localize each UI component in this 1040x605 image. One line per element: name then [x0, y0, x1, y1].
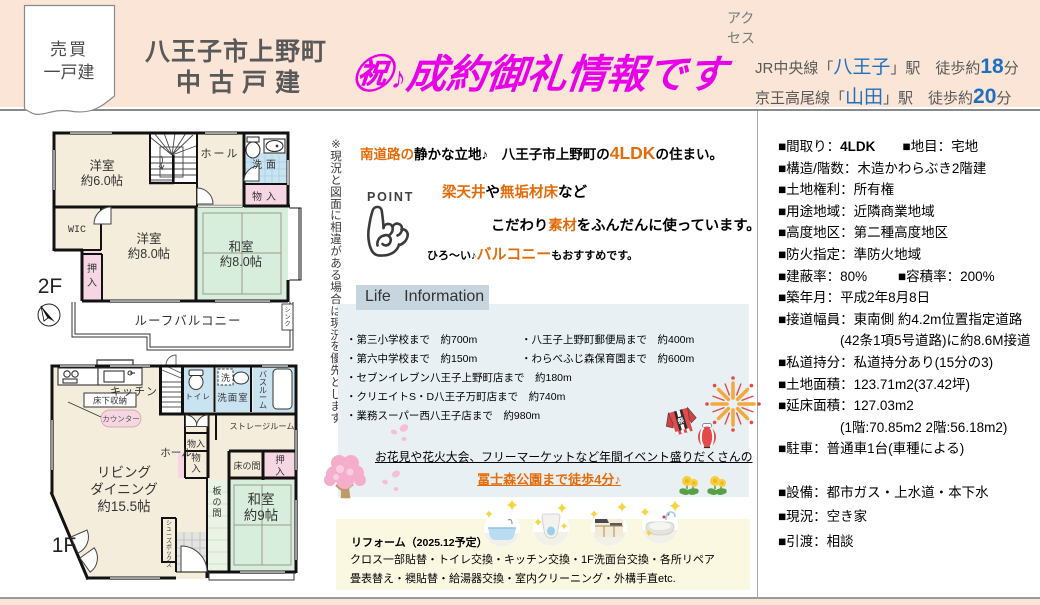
svg-text:ストレージルーム: ストレージルーム [229, 422, 294, 431]
svg-text:入: 入 [191, 464, 201, 475]
svg-text:ホール: ホール [201, 147, 240, 160]
svg-text:洋室: 洋室 [89, 158, 114, 173]
svg-text:シ: シ [284, 308, 290, 314]
svg-text:約9帖: 約9帖 [244, 508, 279, 523]
svg-text:入: 入 [87, 278, 97, 289]
svg-text:カウンター: カウンター [102, 415, 140, 424]
svg-text:和室: 和室 [228, 239, 253, 254]
svg-text:ン: ン [284, 315, 290, 321]
svg-text:床の間: 床の間 [233, 460, 260, 471]
svg-text:リビング: リビング [97, 465, 151, 480]
svg-text:洋室: 洋室 [136, 231, 161, 246]
svg-text:一戸建: 一戸建 [44, 63, 95, 82]
svg-text:トイレ: トイレ [185, 392, 211, 401]
svg-text:ボ: ボ [166, 543, 172, 551]
svg-text:ク: ク [284, 321, 290, 328]
svg-text:和室: 和室 [248, 491, 275, 507]
svg-text:物: 物 [191, 452, 201, 464]
svg-text:ダイニング: ダイニング [90, 482, 158, 497]
svg-text:1F: 1F [52, 534, 77, 557]
svg-text:2F: 2F [38, 275, 63, 298]
svg-text:ズ: ズ [166, 537, 172, 545]
svg-text:物入: 物入 [252, 190, 280, 203]
svg-text:板: 板 [212, 485, 221, 496]
svg-text:押: 押 [275, 454, 285, 466]
svg-text:売買: 売買 [50, 40, 88, 59]
svg-text:ム: ム [259, 401, 267, 410]
svg-text:約6.0帖: 約6.0帖 [81, 173, 123, 188]
svg-text:ホール: ホール [160, 447, 192, 459]
svg-text:ルーフバルコニー: ルーフバルコニー [134, 314, 241, 328]
svg-text:洗: 洗 [221, 372, 230, 383]
svg-text:床下収納: 床下収納 [93, 396, 127, 406]
svg-text:間: 間 [212, 508, 221, 518]
svg-text:約8.0帖: 約8.0帖 [128, 246, 170, 261]
svg-text:WIC: WIC [68, 225, 86, 236]
svg-text:ス: ス [166, 562, 172, 569]
svg-text:洗面室: 洗面室 [217, 392, 249, 404]
svg-text:押: 押 [87, 262, 97, 275]
svg-text:入: 入 [275, 467, 285, 478]
svg-text:約15.5帖: 約15.5帖 [97, 499, 150, 514]
svg-text:ク: ク [166, 556, 172, 563]
svg-text:洗面: 洗面 [252, 159, 280, 171]
svg-text:約8.0帖: 約8.0帖 [220, 254, 262, 269]
svg-text:の: の [212, 497, 221, 507]
